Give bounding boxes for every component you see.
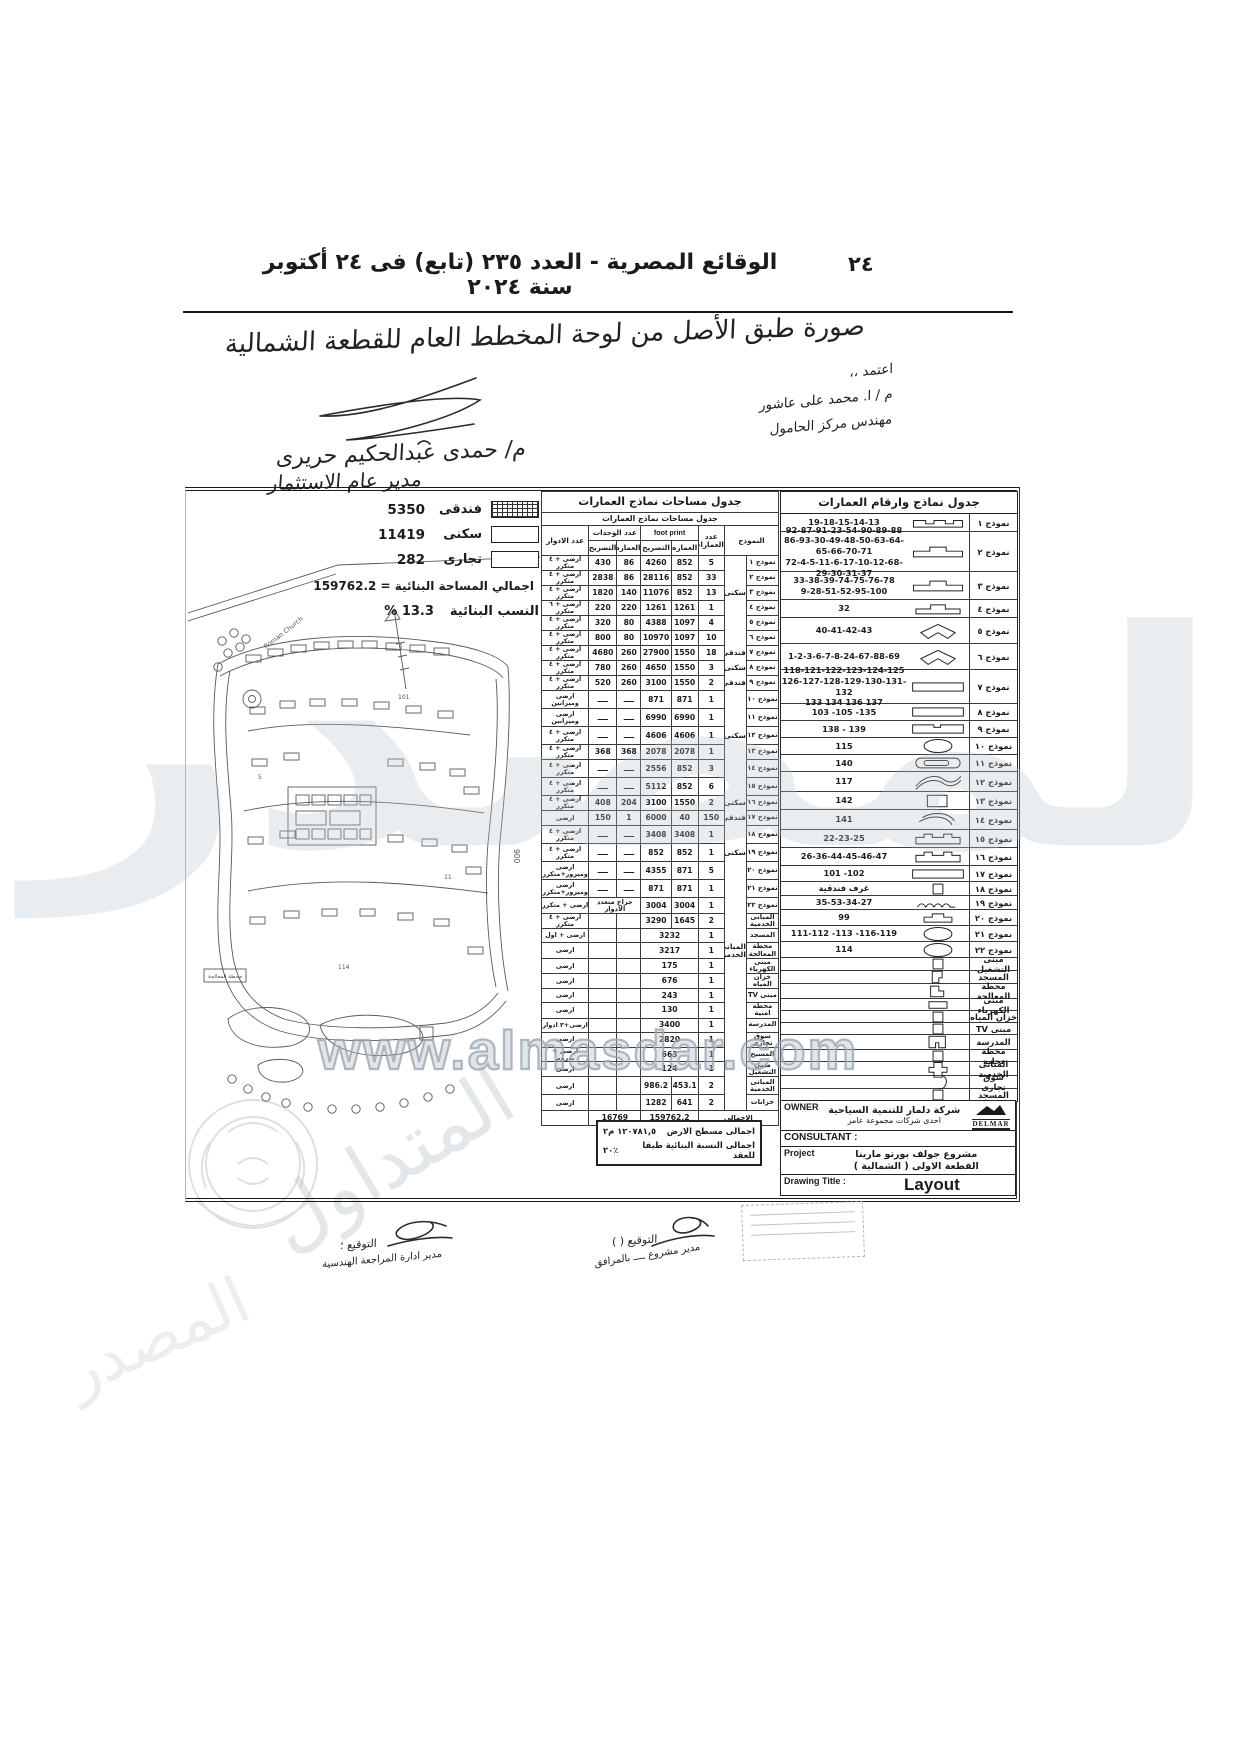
table-row: خزان المياه1676ارضى bbox=[542, 974, 779, 989]
legend-row-residential: سكنى 11419 bbox=[334, 526, 539, 543]
footprint-total-cell: 3004 bbox=[641, 898, 671, 914]
model-label: نموذج ٦ bbox=[969, 644, 1017, 669]
count-cell: 2 bbox=[698, 1095, 724, 1111]
contract-ratio-label: اجمالى النسبة البنائية طبقا للعقد bbox=[618, 1140, 755, 1160]
building-numbers-line: 35-53-34-27 bbox=[781, 897, 907, 908]
commercial-swatch-icon bbox=[491, 551, 539, 568]
table-row: سوق تجارى12820ارضى bbox=[542, 1032, 779, 1047]
floors-cell: ارضى bbox=[542, 943, 589, 959]
building-numbers-line: 126-127-128-129-130-131-132 bbox=[781, 676, 907, 698]
table-row: محطة امنية1130ارضى bbox=[542, 1003, 779, 1018]
floors-cell: ارضى + اول bbox=[542, 929, 589, 943]
col-model: النموذج bbox=[724, 526, 778, 556]
table-row: نموذج ١٠1871871ــــــــارضى وميزانين bbox=[542, 691, 779, 709]
table-row: المدرسة13400ارضى+٣ ادوار bbox=[542, 1018, 779, 1032]
footprint-total-cell: 5112 bbox=[641, 778, 671, 796]
floors-cell: ارضى bbox=[542, 958, 589, 973]
footprint-total-cell: 4260 bbox=[641, 556, 671, 571]
floors-cell: ارضى bbox=[542, 1032, 589, 1047]
count-cell: 1 bbox=[698, 898, 724, 914]
units-bldg-cell: 140 bbox=[617, 586, 641, 601]
building-numbers-line: 99 bbox=[781, 912, 907, 923]
model-row: نموذج ١٤141 bbox=[781, 810, 1017, 830]
model-label: نموذج ٢١ bbox=[969, 926, 1017, 941]
building-numbers: 138 - 139 bbox=[781, 724, 907, 735]
footprint-total-cell: 4606 bbox=[641, 727, 671, 745]
building-numbers: 1-2-3-6-7-8-24-67-88-69 bbox=[781, 651, 907, 662]
owner-name: شركة دلمار للتنمية السياحية احدى شركات م… bbox=[822, 1105, 968, 1127]
category-cell bbox=[724, 556, 746, 571]
units-bldg-cell: ــــ bbox=[617, 760, 641, 778]
floors-cell: ارضى bbox=[542, 1003, 589, 1018]
footprint-bldg-cell: 4606 bbox=[671, 727, 698, 745]
units-bldg-cell: 260 bbox=[617, 661, 641, 676]
model-cell: نموذج ١١ bbox=[746, 709, 778, 727]
category-cell: سكنى bbox=[724, 661, 746, 676]
units-bldg-cell bbox=[617, 1018, 641, 1032]
table-row: خزانات26411282ارضى bbox=[542, 1095, 779, 1111]
units-total-cell: 368 bbox=[589, 745, 617, 760]
footprint-cell: 3217 bbox=[641, 943, 698, 959]
built-ratio-line: النسب البنائية % 13.3 bbox=[334, 604, 539, 619]
footprint-total-cell: 4650 bbox=[641, 661, 671, 676]
cren-a-icon bbox=[907, 514, 969, 532]
floors-cell: ارضى وميزانين bbox=[542, 691, 589, 709]
count-cell: 1 bbox=[698, 943, 724, 959]
building-numbers-line: 103 -105 -135 bbox=[781, 707, 907, 718]
longbar-icon bbox=[907, 703, 969, 721]
col-floors: عدد الادوار bbox=[542, 526, 589, 556]
col-bldg: العماره bbox=[617, 541, 641, 556]
units-total-cell: 320 bbox=[589, 616, 617, 631]
units-total-cell: 800 bbox=[589, 631, 617, 646]
model-cell: مبنى التشغيل bbox=[746, 1062, 778, 1077]
model-cell: نموذج ٤ bbox=[746, 601, 778, 616]
owner-name-line2: احدى شركات مجموعة عامر bbox=[822, 1116, 968, 1126]
units-bldg-cell: 80 bbox=[617, 616, 641, 631]
floors-cell: ارضى + ٤ متكرر bbox=[542, 826, 589, 844]
scurve-icon bbox=[907, 773, 969, 791]
category-cell bbox=[724, 760, 746, 778]
legend-value: 11419 bbox=[378, 527, 425, 543]
units-bldg-cell: ــــ bbox=[617, 778, 641, 796]
units-bldg-cell: ــــ bbox=[617, 691, 641, 709]
building-numbers-line: 9-28-51-52-95-100 bbox=[781, 586, 907, 597]
gazette-scan-page: المتداول المصدر ٢٤ الوقائع المصرية - الع… bbox=[0, 0, 1240, 1755]
count-cell: 33 bbox=[698, 571, 724, 586]
floors-cell: ارضى + ٤ متكرر bbox=[542, 760, 589, 778]
table-row: نموذج ٣سكنى13852110761401820ارضى + ٤ متك… bbox=[542, 586, 779, 601]
model-row: مبنى الكهرباء bbox=[781, 999, 1017, 1011]
units-bldg-cell bbox=[617, 1047, 641, 1061]
footprint-cell: 3232 bbox=[641, 929, 698, 943]
category-cell bbox=[724, 745, 746, 760]
category-cell bbox=[724, 709, 746, 727]
units-bldg-cell bbox=[617, 989, 641, 1003]
table-row: مبنى الكهرباء1175ارضى bbox=[542, 958, 779, 973]
model-cell: المسبح bbox=[746, 1047, 778, 1061]
model-label: نموذج ٨ bbox=[969, 704, 1017, 720]
footprint-bldg-cell: 852 bbox=[671, 778, 698, 796]
model-label: خزان المياه bbox=[969, 1011, 1017, 1022]
model-cell: نموذج ١٣ bbox=[746, 745, 778, 760]
area-table-subtitle: جدول مساحات نماذج العمارات bbox=[542, 513, 779, 526]
footprint-total-cell: 3408 bbox=[641, 826, 671, 844]
model-row: نموذج ١١140 bbox=[781, 755, 1017, 772]
building-numbers: 142 bbox=[781, 795, 907, 806]
building-numbers: 118-121-122-123-124-125126-127-128-129-1… bbox=[781, 665, 907, 708]
count-cell: 1 bbox=[698, 745, 724, 760]
model-label: سوق تجارى bbox=[969, 1076, 1017, 1088]
floors-cell: ارضى وميزانين bbox=[542, 709, 589, 727]
category-cell bbox=[724, 826, 746, 844]
footprint-bldg-cell: 1550 bbox=[671, 796, 698, 811]
model-label: مبنى TV bbox=[969, 1023, 1017, 1034]
ratio-label: النسب البنائية bbox=[450, 604, 539, 619]
gazette-header: الوقائع المصرية - العدد ٢٣٥ (تابع) فى ٢٤… bbox=[240, 250, 800, 300]
arc-icon bbox=[907, 811, 969, 829]
col-units: عدد الوحدات bbox=[589, 526, 641, 541]
count-cell: 13 bbox=[698, 586, 724, 601]
floors-cell: ارضى + ٤ متكرر bbox=[542, 778, 589, 796]
model-cell: محطة امنية bbox=[746, 1003, 778, 1018]
model-cell: مبنى TV bbox=[746, 989, 778, 1003]
category-cell bbox=[724, 914, 746, 929]
model-cell: نموذج ٧ bbox=[746, 646, 778, 661]
floors-cell: ارضى + متكرر bbox=[542, 898, 589, 914]
units-bldg-cell bbox=[617, 974, 641, 989]
units-total-cell: ــــ bbox=[589, 862, 617, 880]
floors-cell: ارضى bbox=[542, 974, 589, 989]
category-cell bbox=[724, 1018, 746, 1032]
model-row: نموذج ٢١111-112 -113 -116-119 bbox=[781, 926, 1017, 942]
footprint-bldg-cell: 852 bbox=[671, 556, 698, 571]
building-numbers: 33-38-39-74-75-76-789-28-51-52-95-100 bbox=[781, 575, 907, 597]
units-total-cell: 2838 bbox=[589, 571, 617, 586]
units-bldg-cell bbox=[617, 914, 641, 929]
footprint-bldg-cell: 2078 bbox=[671, 745, 698, 760]
legend-value: 5350 bbox=[387, 502, 425, 518]
units-bldg-cell bbox=[617, 1077, 641, 1095]
model-label: نموذج ٣ bbox=[969, 572, 1017, 599]
map-number: 114 bbox=[338, 964, 350, 971]
floors-cell: ارضى + ٤ متكرر bbox=[542, 727, 589, 745]
model-cell: نموذج ٢٢ bbox=[746, 898, 778, 914]
table-row: المبانى الخدمية216453290ارضى + ٤ متكرر bbox=[542, 914, 779, 929]
units-total-cell: 408 bbox=[589, 796, 617, 811]
category-cell bbox=[724, 571, 746, 586]
count-cell: 1 bbox=[698, 1032, 724, 1047]
model-row: مبنى TV bbox=[781, 1023, 1017, 1035]
wing-icon bbox=[907, 622, 969, 640]
units-bldg-cell: 220 bbox=[617, 601, 641, 616]
count-cell: 3 bbox=[698, 760, 724, 778]
footprint-bldg-cell: 1261 bbox=[671, 601, 698, 616]
building-numbers-line: 117 bbox=[781, 776, 907, 787]
model-label: نموذج ٧ bbox=[969, 670, 1017, 703]
model-label: نموذج ١ bbox=[969, 514, 1017, 531]
units-bldg-cell: 260 bbox=[617, 676, 641, 691]
category-cell: سكنى bbox=[724, 727, 746, 745]
building-numbers: 35-53-34-27 bbox=[781, 897, 907, 908]
footprint-cell: 3400 bbox=[641, 1018, 698, 1032]
delmar-logo-text: DELMAR bbox=[972, 1119, 1009, 1130]
header-rule bbox=[183, 311, 1013, 316]
building-numbers-line: 1-2-3-6-7-8-24-67-88-69 bbox=[781, 651, 907, 662]
footprint-cell: 676 bbox=[641, 974, 698, 989]
col-footprint: foot print bbox=[641, 526, 698, 541]
category-cell bbox=[724, 1077, 746, 1095]
legend-row-commercial: تجارى 282 bbox=[334, 551, 539, 568]
count-cell: 1 bbox=[698, 601, 724, 616]
footprint-bldg-cell: 871 bbox=[671, 691, 698, 709]
table-row: نموذج ٤112611261220220ارضى + ٦ متكرر bbox=[542, 601, 779, 616]
category-cell bbox=[724, 631, 746, 646]
model-cell: نموذج ١٩ bbox=[746, 844, 778, 862]
table-row: المسبح1663ارضى + بدروم bbox=[542, 1047, 779, 1061]
count-cell: 2 bbox=[698, 796, 724, 811]
units-bldg-cell: 368 bbox=[617, 745, 641, 760]
model-row: نموذج ٢٠99 bbox=[781, 910, 1017, 926]
floors-cell: ارضى + بدروم bbox=[542, 1047, 589, 1061]
floors-cell: ارضى + ٤ متكرر bbox=[542, 586, 589, 601]
category-cell bbox=[724, 974, 746, 989]
category-cell: المبانى الخدمية bbox=[724, 943, 746, 959]
units-bldg-cell bbox=[617, 1003, 641, 1018]
units-bldg-cell: 260 bbox=[617, 646, 641, 661]
units-bldg-cell: ــــ bbox=[617, 727, 641, 745]
building-numbers: 92-87-91-23-54-90-89-8886-93-30-49-48-50… bbox=[781, 525, 907, 579]
table-row: نموذج ١٦سكنى215503100204408ارضى + ٤ متكر… bbox=[542, 796, 779, 811]
footprint-total-cell: 6990 bbox=[641, 709, 671, 727]
units-bldg-cell: 1 bbox=[617, 811, 641, 826]
units-total-cell bbox=[589, 1095, 617, 1111]
building-areas-table: جدول مساحات نماذج العمارات جدول مساحات ن… bbox=[541, 491, 779, 1126]
col-permit: التصريح bbox=[589, 541, 617, 556]
drawing-title-label: Drawing Title : bbox=[781, 1175, 849, 1187]
table-row: نموذج ١٨134083408ــــــــارضى + ٤ متكرر bbox=[542, 826, 779, 844]
footprint-cell: 130 bbox=[641, 1003, 698, 1018]
count-cell: 2 bbox=[698, 1077, 724, 1095]
units-bldg-cell: 86 bbox=[617, 571, 641, 586]
model-cell: محطة المعالجة bbox=[746, 943, 778, 959]
cren-d-icon bbox=[907, 848, 969, 866]
model-row: نموذج ٨103 -105 -135 bbox=[781, 704, 1017, 721]
units-total-cell: 1820 bbox=[589, 586, 617, 601]
units-bldg-cell: 204 bbox=[617, 796, 641, 811]
floors-cell: ارضى bbox=[542, 1062, 589, 1077]
footprint-cell: 2820 bbox=[641, 1032, 698, 1047]
model-label: نموذج ٥ bbox=[969, 618, 1017, 643]
building-numbers: 101 -102 bbox=[781, 868, 907, 879]
model-cell: مبنى الكهرباء bbox=[746, 958, 778, 973]
model-cell: المسجد bbox=[746, 929, 778, 943]
model-cell: نموذج ٢ bbox=[746, 571, 778, 586]
count-cell: 1 bbox=[698, 709, 724, 727]
model-label: نموذج ١٠ bbox=[969, 738, 1017, 754]
model-label: نموذج ١٧ bbox=[969, 866, 1017, 881]
units-total-cell: ــــ bbox=[589, 844, 617, 862]
units-bldg-cell bbox=[617, 929, 641, 943]
project-name: مشروع جولف بورتو مارينا القطعة الاولى ( … bbox=[818, 1149, 1015, 1173]
units-total-cell: 150 bbox=[589, 811, 617, 826]
units-bldg-cell: ــــ bbox=[617, 880, 641, 898]
residential-swatch-icon bbox=[491, 526, 539, 543]
road-length-label: 900 bbox=[512, 849, 521, 864]
model-label: نموذج ١٢ bbox=[969, 772, 1017, 791]
footprint-total-cell: 3290 bbox=[641, 914, 671, 929]
units-bldg-cell: 80 bbox=[617, 631, 641, 646]
map-number: 11 bbox=[444, 874, 452, 881]
footprint-total-cell: 2556 bbox=[641, 760, 671, 778]
table-row: نموذج ٨سكنى315504650260780ارضى + ٤ متكرر bbox=[542, 661, 779, 676]
table-row: نموذج ٦1010971097080800ارضى + ٤ متكرر bbox=[542, 631, 779, 646]
category-cell bbox=[724, 958, 746, 973]
building-numbers: 22-23-25 bbox=[781, 833, 907, 844]
count-cell: 10 bbox=[698, 631, 724, 646]
project-name-line2: القطعة الاولى ( الشمالية ) bbox=[818, 1161, 1015, 1173]
model-row: سوق تجارى bbox=[781, 1076, 1017, 1089]
units-total-cell bbox=[589, 914, 617, 929]
count-cell: 1 bbox=[698, 1018, 724, 1032]
model-cell: نموذج ١٢ bbox=[746, 727, 778, 745]
floors-cell: ارضى bbox=[542, 989, 589, 1003]
building-numbers: 32 bbox=[781, 603, 907, 614]
units-bldg-cell bbox=[617, 1095, 641, 1111]
delmar-logo-icon: DELMAR bbox=[967, 1103, 1015, 1129]
count-cell: 5 bbox=[698, 556, 724, 571]
floors-cell: ارضى + ٤ متكرر bbox=[542, 556, 589, 571]
footprint-total-cell: 4355 bbox=[641, 862, 671, 880]
total-built-area-text: اجمالي المساحة البنائية = 159762.2 bbox=[313, 579, 534, 593]
building-numbers-line: 138 - 139 bbox=[781, 724, 907, 735]
footprint-total-cell: 28116 bbox=[641, 571, 671, 586]
model-cell: نموذج ٩ bbox=[746, 676, 778, 691]
count-cell: 1 bbox=[698, 727, 724, 745]
building-numbers-line: 22-23-25 bbox=[781, 833, 907, 844]
map-legend: فندقى 5350 سكنى 11419 تجارى 282 اجمالي ا… bbox=[334, 501, 539, 619]
footprint-bldg-cell: 871 bbox=[671, 880, 698, 898]
units-bldg-cell: 86 bbox=[617, 556, 641, 571]
model-cell: سوق تجارى bbox=[746, 1032, 778, 1047]
model-row: نموذج ١٨غرف فندقية bbox=[781, 882, 1017, 896]
table-row: نموذج ٢3385228116862838ارضى + ٤ متكرر bbox=[542, 571, 779, 586]
footprint-bldg-cell: 3408 bbox=[671, 826, 698, 844]
units-total-cell: 520 bbox=[589, 676, 617, 691]
model-cell: نموذج ٢٠ bbox=[746, 862, 778, 880]
units-total-cell: ــــ bbox=[589, 778, 617, 796]
model-cell: نموذج ١٧ bbox=[746, 811, 778, 826]
building-numbers-line: 40-41-42-43 bbox=[781, 625, 907, 636]
model-label: مبنى الكهرباء bbox=[969, 999, 1017, 1010]
category-cell bbox=[724, 929, 746, 943]
ink-stamp bbox=[741, 1201, 865, 1261]
model-row: نموذج ١٥22-23-25 bbox=[781, 830, 1017, 848]
handwritten-copy-note: صورة طبق الأصل من لوحة المخطط العام للقط… bbox=[195, 312, 866, 361]
contract-ratio-line: اجمالى النسبة البنائية طبقا للعقد ٢٠٪ bbox=[603, 1140, 755, 1160]
building-numbers-line: غرف فندقية bbox=[781, 883, 907, 894]
model-cell: نموذج ٨ bbox=[746, 661, 778, 676]
building-numbers: 117 bbox=[781, 776, 907, 787]
floors-cell: ارضى bbox=[542, 1077, 589, 1095]
units-bldg-cell: ــــ bbox=[617, 826, 641, 844]
table-row: نموذج ١٢سكنى146064606ــــــــارضى + ٤ مت… bbox=[542, 727, 779, 745]
floors-cell: ارضى + ٤ متكرر bbox=[542, 844, 589, 862]
ratio-value: % 13.3 bbox=[384, 604, 434, 619]
floors-cell: ارضى + ٦ متكرر bbox=[542, 601, 589, 616]
units-bldg-cell bbox=[617, 1062, 641, 1077]
units-total-cell bbox=[589, 989, 617, 1003]
handwritten-approval-block: اعتمد ،، م / ا. محمد على عاشور مهندس مرك… bbox=[688, 357, 894, 450]
model-label: نموذج ١٦ bbox=[969, 848, 1017, 865]
count-cell: 1 bbox=[698, 880, 724, 898]
building-numbers-line: 142 bbox=[781, 795, 907, 806]
owner-name-line1: شركة دلمار للتنمية السياحية bbox=[822, 1105, 968, 1117]
units-total-cell: ــــ bbox=[589, 826, 617, 844]
building-numbers: غرف فندقية bbox=[781, 883, 907, 894]
model-label: نموذج ١٣ bbox=[969, 792, 1017, 809]
units-total-cell bbox=[589, 1077, 617, 1095]
table-row: نموذج ١٥68525112ــــــــارضى + ٤ متكرر bbox=[542, 778, 779, 796]
building-numbers-line: 33-38-39-74-75-76-78 bbox=[781, 575, 907, 586]
building-numbers: 115 bbox=[781, 741, 907, 752]
floors-cell: ارضى + ٤ متكرر bbox=[542, 796, 589, 811]
floors-cell: ارضى وميزور+متكرر bbox=[542, 880, 589, 898]
building-numbers: 141 bbox=[781, 814, 907, 825]
consultant-label: CONSULTANT : bbox=[781, 1131, 861, 1144]
station-label: محطة المعالجة bbox=[208, 974, 242, 980]
count-cell: 1 bbox=[698, 844, 724, 862]
model-numbers-table: جدول نماذج وارقام العمارات نموذج ١19-18-… bbox=[780, 491, 1018, 1102]
units-total-cell: ــــ bbox=[589, 727, 617, 745]
category-cell bbox=[724, 1047, 746, 1061]
building-numbers: 26-36-44-45-46-47 bbox=[781, 851, 907, 862]
total-built-area-line: اجمالي المساحة البنائية = 159762.2 bbox=[334, 576, 539, 596]
table-row: نموذج ١٤38522556ــــــــارضى + ٤ متكرر bbox=[542, 760, 779, 778]
table-row: نموذج ٢٠58714355ــــــــارضى وميزور+متكر… bbox=[542, 862, 779, 880]
footprint-bldg-cell: 453.1 bbox=[671, 1077, 698, 1095]
table-row: نموذج ١5852426086430ارضى + ٤ متكرر bbox=[542, 556, 779, 571]
footprint-total-cell: 1261 bbox=[641, 601, 671, 616]
building-numbers-line: 86-93-30-49-48-50-63-64-65-66-70-71 bbox=[781, 535, 907, 557]
units-bldg-cell: ــــ bbox=[617, 709, 641, 727]
owner-label: OWNER bbox=[781, 1101, 822, 1113]
units-bldg-cell bbox=[617, 1032, 641, 1047]
units-total-cell bbox=[589, 1047, 617, 1061]
footprint-cell: 243 bbox=[641, 989, 698, 1003]
footprint-bldg-cell: 1550 bbox=[671, 661, 698, 676]
building-numbers: 140 bbox=[781, 758, 907, 769]
building-numbers-line: 92-87-91-23-54-90-89-88 bbox=[781, 525, 907, 536]
table-row: نموذج ١٣120782078368368ارضى + ٤ متكرر bbox=[542, 745, 779, 760]
building-numbers-line: 140 bbox=[781, 758, 907, 769]
category-cell bbox=[724, 1032, 746, 1047]
model-cell: نموذج ١٥ bbox=[746, 778, 778, 796]
category-cell bbox=[724, 601, 746, 616]
title-block: OWNER شركة دلمار للتنمية السياحية احدى ش… bbox=[780, 1100, 1016, 1196]
model-cell: خزانات bbox=[746, 1095, 778, 1111]
model-label: نموذج ٢٠ bbox=[969, 910, 1017, 925]
totals-empty bbox=[542, 1111, 589, 1126]
model-label: نموذج ١١ bbox=[969, 755, 1017, 771]
units-total-cell bbox=[589, 1032, 617, 1047]
units-bldg-cell: ــــ bbox=[617, 844, 641, 862]
land-area-value: ١٢٠٧٨١,٥ م٢ bbox=[603, 1126, 656, 1136]
model-row: نموذج ٧118-121-122-123-124-125126-127-12… bbox=[781, 670, 1017, 704]
legend-label: فندقى bbox=[434, 502, 482, 517]
count-cell: 2 bbox=[698, 914, 724, 929]
cren-b-icon bbox=[907, 543, 969, 561]
